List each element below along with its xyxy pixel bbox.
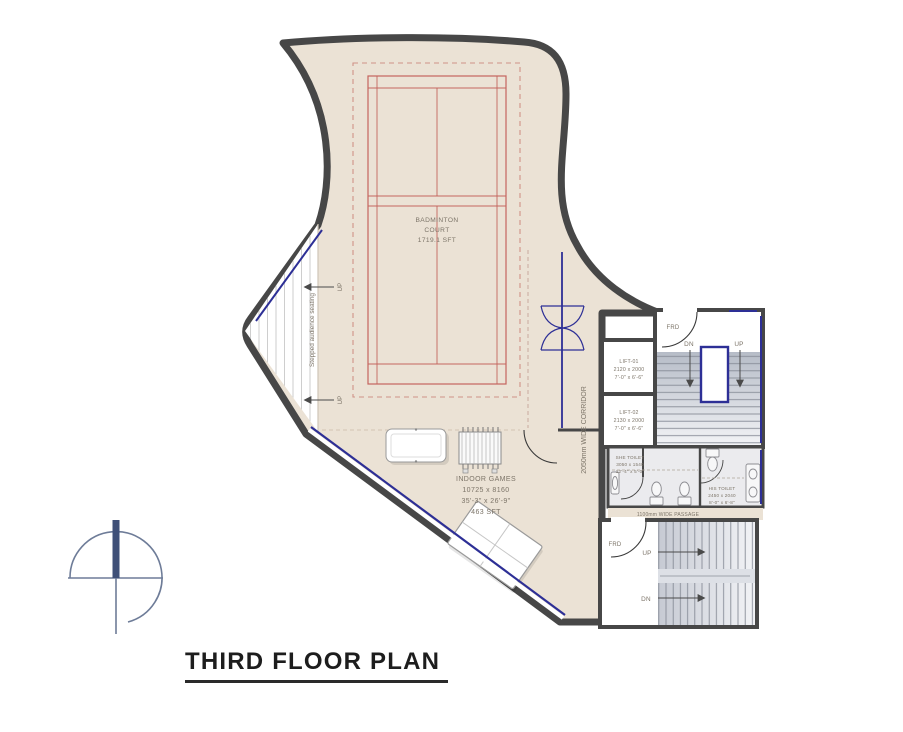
north-arrow-icon — [68, 520, 163, 634]
she-toilet-label-1: SHE TOILET — [616, 455, 645, 460]
sink-basin-icon — [749, 469, 757, 479]
lift2-label-3: 7'-0" x 6'-6" — [615, 426, 644, 432]
indoor-games-label-1: INDOOR GAMES — [456, 476, 516, 483]
lift2-label-2: 2130 x 2000 — [614, 418, 645, 424]
frd-label: FRD — [609, 542, 622, 548]
his-toilet-label-3: 8'-0" x 6'-8" — [709, 500, 735, 505]
dn-label: DN — [641, 596, 651, 603]
badminton-label-3: 1719.1 SFT — [418, 237, 456, 244]
seating-up-label: UP — [337, 396, 344, 405]
upper-stair-block: FRD DN UP — [655, 310, 763, 447]
toilet-block: SHE TOILET 3050 x 1540 12'-4" x 5'-0" HI… — [608, 447, 763, 507]
up-label: UP — [734, 341, 743, 348]
corridor-label: 2050mm WIDE CORRIDOR — [581, 386, 588, 474]
sink-basin-icon — [612, 477, 617, 490]
floor-plan-drawing: UP UP Stepped audience seating BADMINTON… — [0, 0, 903, 732]
indoor-games-label-2: 10725 x 8160 — [462, 487, 509, 494]
indoor-games-label-3: 35'-3" x 26'-9" — [461, 498, 510, 505]
lift1-label-2: 2120 x 2000 — [614, 367, 645, 373]
indoor-games-label-4: 463 SFT — [471, 509, 501, 516]
badminton-label-1: BADMINTON — [415, 217, 458, 224]
wc-bowl-icon — [652, 482, 662, 496]
seating-label: Stepped audience seating — [309, 293, 316, 367]
pool-table-icon — [386, 428, 449, 465]
wc-tank-icon — [678, 497, 691, 505]
wc-bowl-icon — [680, 482, 690, 496]
plan-title: THIRD FLOOR PLAN — [185, 648, 448, 683]
lift2-label-1: LIFT-02 — [619, 410, 638, 416]
she-toilet-label-3: 12'-4" x 5'-0" — [616, 469, 645, 474]
she-toilet-label-2: 3050 x 1540 — [616, 462, 644, 467]
his-toilet-label-1: HIS TOILET — [709, 486, 736, 491]
lift1-label-1: LIFT-01 — [619, 359, 638, 365]
his-toilet-label-2: 2450 x 2040 — [708, 493, 736, 498]
passage-label: 1100mm WIDE PASSAGE — [637, 512, 700, 518]
seating-up-label: UP — [337, 283, 344, 292]
wc-bowl-icon — [708, 457, 718, 471]
lower-stair-block: FRD UP DN — [600, 520, 757, 627]
floor-plan-page: UP UP Stepped audience seating BADMINTON… — [0, 0, 903, 732]
sink-basin-icon — [749, 487, 757, 497]
up-label: UP — [642, 550, 651, 557]
lift1-label-3: 7'-0" x 6'-6" — [615, 375, 644, 381]
frd-label: FRD — [667, 325, 680, 331]
wc-tank-icon — [706, 449, 719, 457]
dn-label: DN — [684, 341, 694, 348]
badminton-label-2: COURT — [424, 227, 449, 234]
lift-block: LIFT-01 2120 x 2000 7'-0" x 6'-6" LIFT-0… — [602, 340, 655, 447]
stair-flight-divider — [701, 347, 728, 402]
wc-tank-icon — [650, 497, 663, 505]
